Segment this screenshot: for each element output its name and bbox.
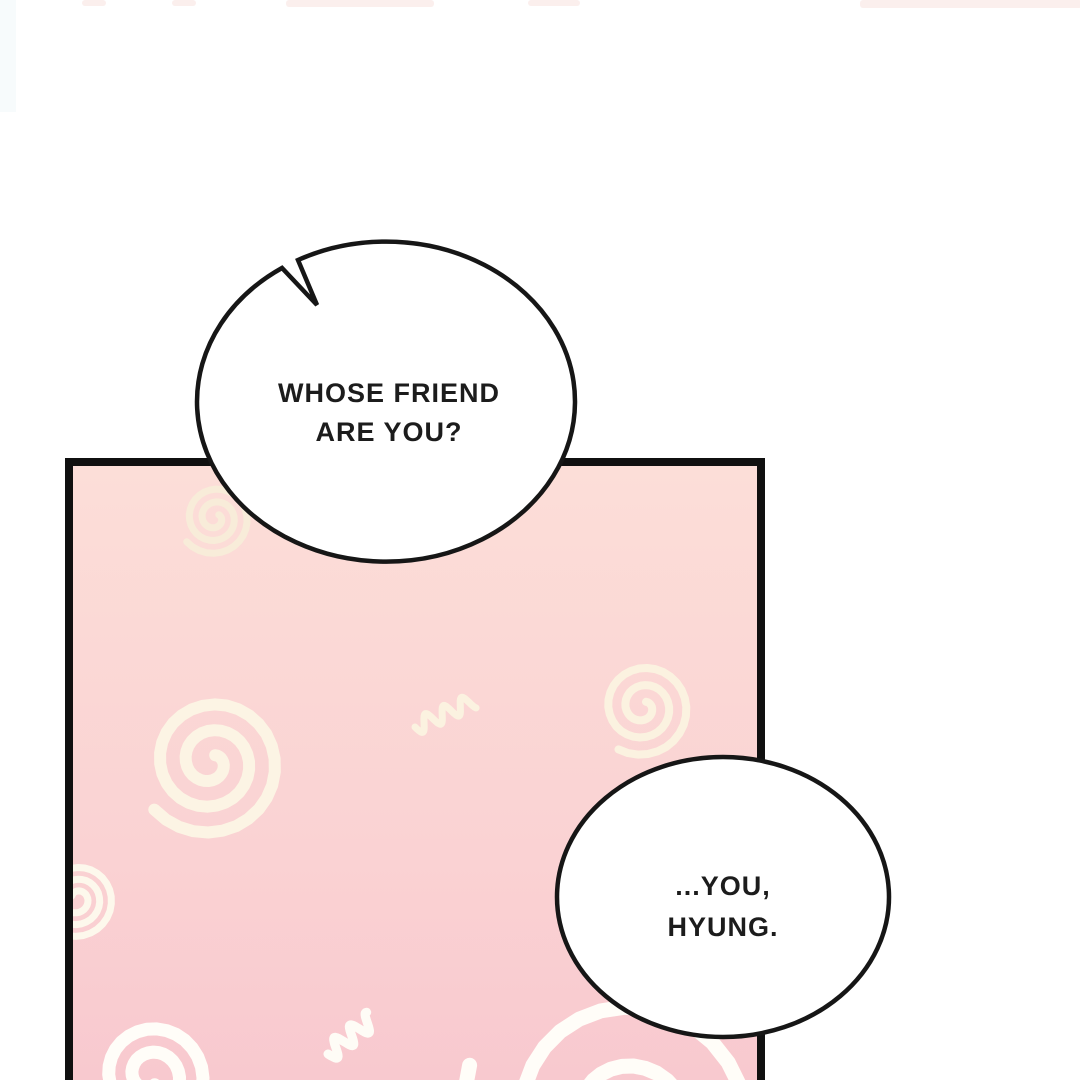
comic-page: WHOSE FRIEND ARE YOU? ...YOU, HYUNG. [0, 0, 1080, 1080]
bubble-2-dialogue: ...YOU, HYUNG. [573, 866, 873, 948]
dialogue-line: ...YOU, [573, 866, 873, 907]
dialogue-line: HYUNG. [573, 907, 873, 948]
dialogue-line: ARE YOU? [219, 413, 559, 452]
dialogue-line: WHOSE FRIEND [219, 374, 559, 413]
bubble-1-dialogue: WHOSE FRIEND ARE YOU? [219, 374, 559, 452]
panel-scene [0, 0, 1080, 1080]
